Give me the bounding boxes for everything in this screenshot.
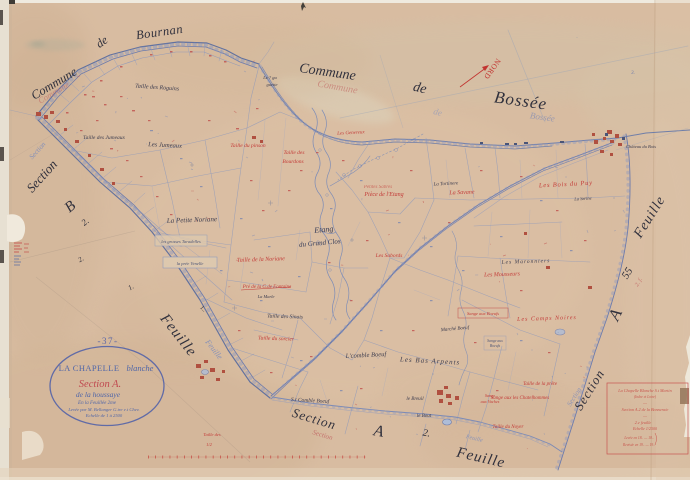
svg-text:Etang: Etang: [313, 224, 334, 235]
svg-text:le Bout: le Bout: [417, 414, 432, 419]
svg-text:Petites Sabres: Petites Sabres: [363, 185, 392, 190]
svg-text:Les Sabords: Les Sabords: [375, 253, 403, 259]
svg-text:Taille du pinson: Taille du pinson: [230, 143, 265, 149]
svg-text:Taille de la prête: Taille de la prête: [523, 382, 558, 387]
svg-text:Château du Bois: Château du Bois: [626, 144, 656, 149]
svg-text:Pièce de l'Etang: Pièce de l'Etang: [363, 192, 403, 198]
svg-text:Le ? gu: Le ? gu: [262, 75, 277, 80]
svg-text:2.e feuille: 2.e feuille: [635, 420, 652, 425]
svg-text:le Breuil: le Breuil: [406, 397, 424, 402]
svg-text:LA CHAPELLE: LA CHAPELLE: [59, 363, 120, 373]
svg-text:En la Feuillée 2me: En la Feuillée 2me: [77, 401, 117, 406]
svg-text:Section A.2 de la Bonneraie: Section A.2 de la Bonneraie: [622, 407, 669, 412]
svg-text:Taille du Noyer: Taille du Noyer: [493, 425, 524, 430]
svg-text:La Chapelle Blanche S.t Martin: La Chapelle Blanche S.t Martin: [617, 388, 671, 393]
svg-text:Taille des Jumeaux: Taille des Jumeaux: [83, 135, 126, 141]
svg-text:guette: guette: [267, 82, 278, 87]
svg-text:3.: 3.: [631, 71, 635, 76]
svg-text:Levée en 18.. — 18..: Levée en 18.. — 18..: [623, 436, 653, 440]
svg-text:Boeufs: Boeufs: [490, 344, 501, 348]
svg-text:Sange: Sange: [485, 393, 495, 398]
svg-text:Section A.: Section A.: [79, 379, 121, 390]
svg-text:Taille des Sinais: Taille des Sinais: [267, 313, 303, 320]
svg-text:1/2: 1/2: [206, 442, 213, 447]
svg-text:Bourdons: Bourdons: [282, 159, 303, 165]
svg-text:blanche: blanche: [127, 363, 154, 373]
svg-text:Sange aux Boeufs: Sange aux Boeufs: [467, 311, 499, 316]
svg-text:de la houssaye: de la houssaye: [76, 390, 121, 399]
svg-text:Taille des: Taille des: [283, 150, 304, 156]
svg-text:-37-: -37-: [98, 336, 119, 346]
svg-text:les grosses Taradelles: les grosses Taradelles: [161, 239, 201, 244]
svg-text:Taille du sorcier: Taille du sorcier: [258, 335, 295, 342]
svg-text:aux Vaches: aux Vaches: [481, 399, 500, 404]
svg-text:Revisée en 19.. — 19..: Revisée en 19.. — 19..: [622, 443, 655, 447]
svg-text:..: ..: [576, 34, 578, 39]
svg-text:La Savane: La Savane: [448, 190, 475, 197]
svg-text:La Serine: La Serine: [573, 196, 592, 202]
svg-text:Echelle 1/2500: Echelle 1/2500: [632, 426, 657, 431]
svg-text:Levée par M. Bellanger G.tre e: Levée par M. Bellanger G.tre e.t Chev.: [67, 407, 139, 412]
svg-text:Sange aux les Chatelhommes: Sange aux les Chatelhommes: [491, 396, 550, 401]
svg-text:Sange aux: Sange aux: [487, 339, 503, 343]
svg-text:la prée Venelle: la prée Venelle: [177, 261, 204, 266]
svg-text:(Indre et Loire): (Indre et Loire): [634, 395, 657, 399]
svg-text:La Marle: La Marle: [257, 294, 275, 299]
svg-text:Echelle de 1 à 2500: Echelle de 1 à 2500: [85, 413, 123, 418]
